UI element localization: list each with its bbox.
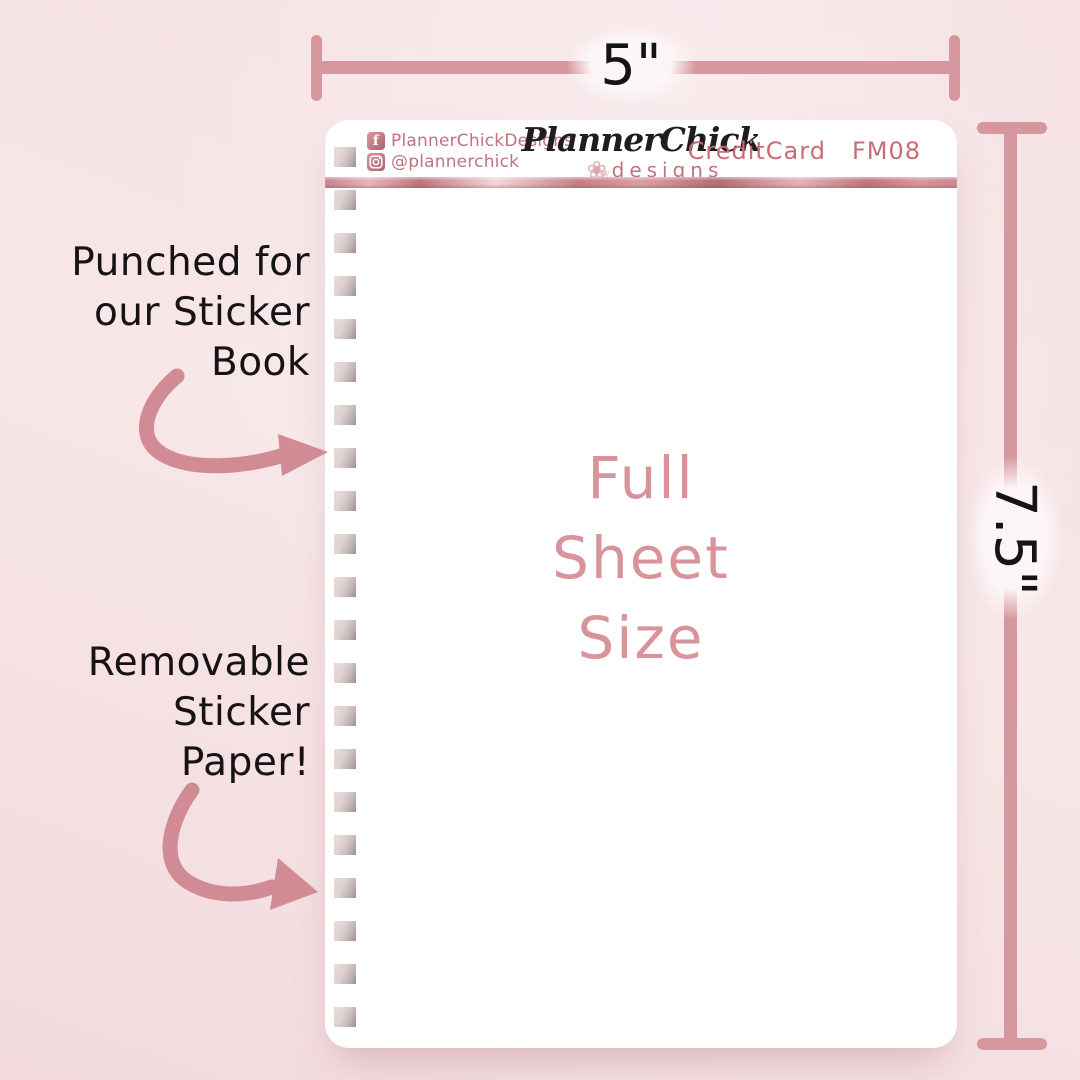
sheet-size-caption-line1: Full [325, 438, 957, 518]
product-label: CreditCard FM08 [688, 137, 921, 165]
height-dimension-label: 7.5" [982, 481, 1047, 596]
sheet-size-caption-line3: Size [325, 598, 957, 678]
sheet-size-caption: Full Sheet Size [325, 438, 957, 678]
width-dimension-label: 5" [600, 33, 661, 98]
punch-hole [334, 964, 356, 984]
removable-arrow-icon [152, 778, 332, 928]
sheet-size-caption-line2: Sheet [325, 518, 957, 598]
height-dimension-label-bubble: 7.5" [964, 456, 1064, 620]
height-dimension-cap-top [977, 122, 1047, 134]
product-name: CreditCard [688, 137, 826, 165]
punch-hole [334, 233, 356, 253]
facebook-icon: f [367, 132, 385, 150]
removable-annotation-line1: Removable [14, 638, 310, 688]
punch-hole [334, 792, 356, 812]
instagram-handle: @plannerchick [391, 152, 519, 172]
punch-hole [334, 749, 356, 769]
punch-hole [334, 190, 356, 210]
instagram-icon [367, 153, 385, 171]
punch-hole [334, 706, 356, 726]
removable-annotation: Removable Sticker Paper! [14, 638, 310, 788]
sticker-sheet: f PlannerChickDesigns @plannerchick Plan… [325, 120, 957, 1048]
height-dimension-cap-bottom [977, 1038, 1047, 1050]
width-dimension-cap-right [949, 35, 960, 101]
rose-gold-divider [325, 177, 957, 188]
product-image: 5" 7.5" f PlannerChickDesigns @ [0, 0, 1080, 1080]
width-dimension-cap-left [311, 35, 322, 101]
width-dimension-label-bubble: 5" [566, 26, 696, 104]
punched-annotation-line1: Punched for [14, 238, 310, 288]
punch-hole [334, 362, 356, 382]
punch-hole [334, 319, 356, 339]
punch-hole [334, 147, 356, 167]
punch-hole [334, 276, 356, 296]
punched-annotation-line2: our Sticker [14, 288, 310, 338]
punch-hole [334, 1007, 356, 1027]
punch-hole [334, 835, 356, 855]
punched-arrow-icon [132, 362, 332, 512]
punch-hole [334, 405, 356, 425]
product-code: FM08 [852, 137, 921, 165]
punch-hole [334, 878, 356, 898]
punch-hole [334, 921, 356, 941]
removable-annotation-line2: Sticker [14, 688, 310, 738]
